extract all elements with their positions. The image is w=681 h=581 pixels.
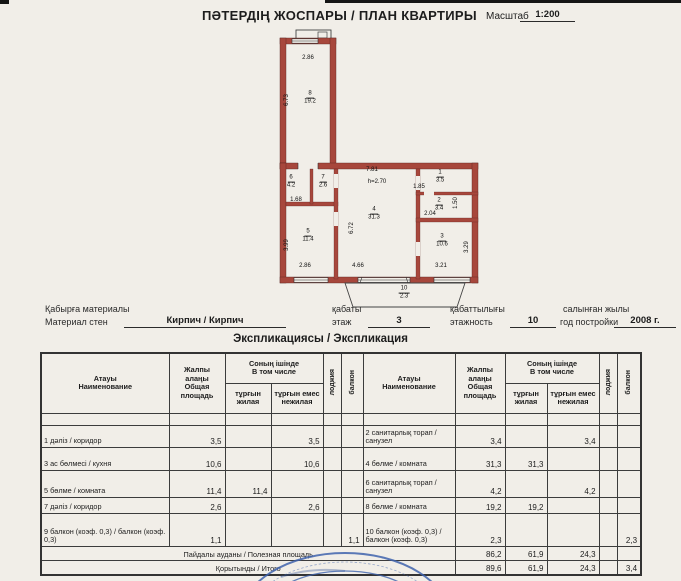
room-loggia: [323, 425, 341, 447]
dim-room5-height: 3.99: [284, 239, 290, 251]
dim-kitchen-height: 3.29: [464, 241, 470, 253]
room-loggia: [323, 447, 341, 470]
room-name: 1 дәліз / коридор: [41, 425, 169, 447]
room-nonliving: 4,2: [547, 470, 599, 497]
col-header-living-left: тұрғынжилая: [225, 383, 271, 413]
room-loggia: [323, 470, 341, 497]
scan-corner-artifact: [0, 0, 9, 4]
table-cell: [547, 413, 599, 425]
col-header-total-right: Жалпы алаңыОбщая площадь: [455, 353, 505, 413]
room-total: 3,5: [169, 425, 225, 447]
col-header-total-left: Жалпы алаңыОбщая площадь: [169, 353, 225, 413]
totals-living: 61,9: [505, 546, 547, 560]
table-row: 5 бөлме / комната 11,4 11,4 6 санитарлық…: [41, 470, 641, 497]
room-label-4: 431.3: [368, 207, 380, 222]
room-total: 10,6: [169, 447, 225, 470]
room-living: 11,4: [225, 470, 271, 497]
table-row: 7 дәліз / коридор 2,6 2,6 8 бөлме / комн…: [41, 497, 641, 513]
room-total: 2,3: [455, 513, 505, 546]
room-living: [505, 425, 547, 447]
room-loggia: [599, 447, 617, 470]
room-nonliving: 2,6: [271, 497, 323, 513]
totals-loggia: [599, 546, 617, 560]
col-header-name-right: АтауыНаименование: [363, 353, 455, 413]
material-label-kz: Қабырға материалы: [45, 304, 129, 314]
col-header-name-left: АтауыНаименование: [41, 353, 169, 413]
dim-kitchen-width: 3.21: [435, 263, 447, 269]
explication-title: Экспликациясы / Экспликация: [0, 333, 641, 345]
room-living: [505, 470, 547, 497]
totals-total: 89,6: [455, 560, 505, 575]
storeys-label-ru: этажность: [450, 317, 493, 327]
material-label-ru: Материал стен: [45, 317, 108, 327]
room-label-3: 310.6: [436, 234, 448, 249]
dim-top-width: 7.81: [366, 167, 378, 173]
table-row: 3 ас бөлмесі / кухня 10,6 10,6 4 бөлме /…: [41, 447, 641, 470]
dim-ceiling-height: h=2.70: [368, 179, 387, 185]
col-header-balcony-left: балкон: [341, 353, 363, 413]
scale-value: 1:200: [520, 9, 575, 22]
table-cell: [341, 413, 363, 425]
room-name: 9 балкон (коэф. 0,3) / балкон (коэф. 0,3…: [41, 513, 169, 546]
room-label-6: 64.2: [287, 175, 295, 190]
dim-room5-width: 2.86: [299, 263, 311, 269]
col-header-loggia-right: лоджия: [599, 353, 617, 413]
room-nonliving: 3,5: [271, 425, 323, 447]
col-header-balcony-right: балкон: [617, 353, 641, 413]
col-header-nonliving-right: тұрғын емеснежилая: [547, 383, 599, 413]
room-balcony: [617, 470, 641, 497]
room-loggia: [599, 425, 617, 447]
floor-label-kz: қабаты: [332, 304, 361, 314]
table-cell: [323, 413, 341, 425]
col-header-loggia-left: лоджия: [323, 353, 341, 413]
room-name: 7 дәліз / коридор: [41, 497, 169, 513]
totals-living: 61,9: [505, 560, 547, 575]
room-loggia: [599, 470, 617, 497]
dim-room8-height: 6.73: [284, 94, 290, 106]
room-name: 6 санитарлық торап / санузел: [363, 470, 455, 497]
room-nonliving: 10,6: [271, 447, 323, 470]
room-label-5: 511.4: [302, 229, 313, 244]
room-living: 19,2: [505, 497, 547, 513]
year-label-kz: салынған жылы: [563, 304, 629, 314]
room-nonliving: [547, 497, 599, 513]
table-cell: [41, 413, 169, 425]
room-loggia: [599, 497, 617, 513]
scan-edge-artifact: [325, 0, 681, 3]
col-header-living-right: тұрғынжилая: [505, 383, 547, 413]
room-name: 2 санитарлық торап / санузел: [363, 425, 455, 447]
dim-hall-width: 1.85: [413, 184, 425, 190]
room-living: 31,3: [505, 447, 547, 470]
room-loggia: [323, 513, 341, 546]
table-cell: [505, 413, 547, 425]
year-label-ru: год постройки: [560, 317, 618, 327]
year-value: 2008 г.: [614, 315, 676, 328]
room-nonliving: [271, 470, 323, 497]
room-label-1: 13.5: [436, 170, 444, 185]
totals-nonliving: 24,3: [547, 560, 599, 575]
room-living: [225, 497, 271, 513]
dim-room4-height: 6.72: [349, 222, 355, 234]
table-row: 9 балкон (коэф. 0,3) / балкон (коэф. 0,3…: [41, 513, 641, 546]
table-cell: [169, 413, 225, 425]
room-total: 1,1: [169, 513, 225, 546]
room-total: 2,6: [169, 497, 225, 513]
dim-wc-height: 1.50: [453, 197, 459, 209]
room-nonliving: [547, 513, 599, 546]
room-living: [225, 425, 271, 447]
col-header-incl-left: Соның ішіндеВ том числе: [225, 353, 323, 383]
room-name: 5 бөлме / комната: [41, 470, 169, 497]
room-name: 4 бөлме / комната: [363, 447, 455, 470]
dim-room8-width: 2.86: [302, 55, 314, 61]
scanned-floor-plan-document: { "header": { "title": "ПӘТЕРДІҢ ЖОСПАРЫ…: [0, 0, 681, 581]
page-title: ПӘТЕРДІҢ ЖОСПАРЫ / ПЛАН КВАРТИРЫ: [202, 8, 477, 23]
dim-wc-width: 2.04: [424, 211, 436, 217]
table-cell: [455, 413, 505, 425]
room-name: 10 балкон (коэф. 0,3) / балкон (коэф. 0,…: [363, 513, 455, 546]
room-balcony: 2,3: [617, 513, 641, 546]
table-row-empty: [41, 413, 641, 425]
room-balcony: [341, 425, 363, 447]
material-value: Кирпич / Кирпич: [124, 315, 286, 328]
storeys-value: 10: [510, 315, 556, 328]
room-label-10: 102.3: [399, 286, 410, 301]
dim-room4-width: 4.66: [352, 263, 364, 269]
room-balcony: [341, 497, 363, 513]
col-header-nonliving-left: тұрғын емеснежилая: [271, 383, 323, 413]
totals-loggia: [599, 560, 617, 575]
totals-total: 86,2: [455, 546, 505, 560]
stamp-icon: [233, 543, 458, 581]
room-balcony: [617, 497, 641, 513]
table-cell: [363, 413, 455, 425]
floor-label-ru: этаж: [332, 317, 351, 327]
room-balcony: [617, 425, 641, 447]
table-cell: [599, 413, 617, 425]
room-balcony: [341, 447, 363, 470]
room-total: 4,2: [455, 470, 505, 497]
room-loggia: [323, 497, 341, 513]
room-living: [225, 513, 271, 546]
official-stamp: [233, 543, 458, 581]
table-cell: [225, 413, 271, 425]
table-cell: [271, 413, 323, 425]
room-label-7: 72.6: [319, 175, 327, 190]
storeys-label-kz: қабаттылығы: [450, 304, 505, 314]
table-row: 1 дәліз / коридор 3,5 3,5 2 санитарлық т…: [41, 425, 641, 447]
totals-balcony: 3,4: [617, 560, 641, 575]
room-total: 31,3: [455, 447, 505, 470]
room-loggia: [599, 513, 617, 546]
room-balcony: [617, 447, 641, 470]
room-living: [505, 513, 547, 546]
room-nonliving: 3,4: [547, 425, 599, 447]
room-balcony: [341, 470, 363, 497]
room-nonliving: [547, 447, 599, 470]
table-cell: [617, 413, 641, 425]
col-header-incl-right: Соның ішіндеВ том числе: [505, 353, 599, 383]
room-label-8: 819.2: [304, 91, 316, 106]
room-name: 8 бөлме / комната: [363, 497, 455, 513]
room-living: [225, 447, 271, 470]
room-name: 3 ас бөлмесі / кухня: [41, 447, 169, 470]
dim-bath-width: 1.68: [290, 197, 302, 203]
room-total: 19,2: [455, 497, 505, 513]
room-nonliving: [271, 513, 323, 546]
room-total: 3,4: [455, 425, 505, 447]
room-balcony: 1,1: [341, 513, 363, 546]
totals-balcony: [617, 546, 641, 560]
totals-nonliving: 24,3: [547, 546, 599, 560]
floor-value: 3: [368, 315, 430, 328]
room-total: 11,4: [169, 470, 225, 497]
